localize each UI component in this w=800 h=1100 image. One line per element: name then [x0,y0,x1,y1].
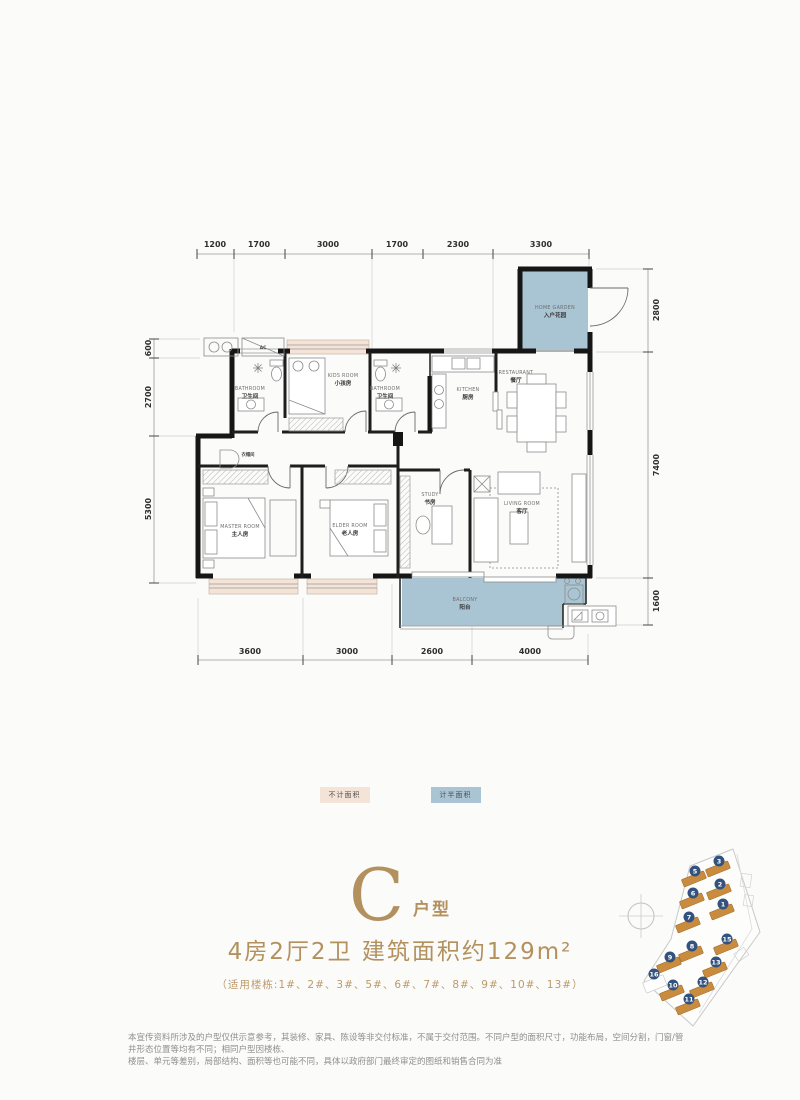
unit-spec-subtitle: 4房2厅2卫 建筑面积约129m² [0,932,800,966]
kids-bed [289,358,325,414]
title-block: C 户型 4房2厅2卫 建筑面积约129m² （适用楼栋:1#、2#、3#、5#… [0,862,800,992]
restaurant-label-en: RESTAURANT [499,370,534,376]
study-desk [416,506,452,544]
home-garden-label-zh: 入户花园 [543,311,567,319]
dim-right-1: 2800 [652,298,661,321]
dim-left-2: 2700 [144,385,153,408]
balcony-area [402,578,586,626]
disclaimer-line1: 本宣传资料所涉及的户型仅供示意参考，其装修、家具、陈设等非交付标准，不属于交付范… [128,1032,684,1056]
dim-bottom-4: 4000 [519,647,542,656]
home-garden-label-en: HOME GARDEN [535,305,575,311]
legend-half-label: 计半面积 [440,790,472,800]
study-bookshelf [400,476,410,568]
dim-bottom-1: 3600 [239,647,262,656]
legend-excluded-area: 不计面积 [320,787,370,803]
study-label-zh: 书房 [424,498,436,506]
master-room-label-zh: 主人房 [232,530,249,538]
disclaimer: 本宣传资料所涉及的户型仅供示意参考，其装修、家具、陈设等非交付标准，不属于交付范… [128,1032,684,1068]
master-room-label-en: MASTER ROOM [220,524,260,530]
dim-top-4: 1700 [386,240,409,249]
dim-left-1: 600 [144,339,153,356]
dim-top-5: 2300 [447,240,470,249]
bathroom2-label-zh: 卫生间 [377,392,394,400]
legend-excluded-label: 不计面积 [329,790,361,800]
study-label-en: STUDY [421,492,438,498]
balcony-label-zh: 阳台 [459,603,471,611]
bathroom2-fixtures [374,360,402,411]
kids-wardrobe [289,418,343,431]
cloak-label: 衣帽间 [242,451,256,458]
living-room-label-zh: 客厅 [515,507,528,515]
dim-top-2: 1700 [248,240,271,249]
elder-wardrobe [335,470,391,484]
dim-left-3: 5300 [144,497,153,520]
floorplan-flyer-page: 1200 1700 3000 1700 2300 3300 3600 3000 … [0,0,800,1100]
dim-top-1: 1200 [204,240,227,249]
legend-half-area: 计半面积 [431,787,481,803]
dim-right-2: 7400 [652,453,661,476]
applicable-buildings-note: （适用楼栋:1#、2#、3#、5#、6#、7#、8#、9#、10#、13#） [0,977,800,992]
balcony-label-en: BALCONY [453,597,478,603]
elder-room-label-zh: 老人房 [341,529,359,537]
legend: 不计面积 计半面积 [0,787,800,803]
ac-label: AC [260,345,266,351]
living-furniture [474,472,586,568]
living-room-label-en: LIVING ROOM [504,501,540,507]
kitchen-label-en: KITCHEN [457,387,480,393]
restaurant-label-zh: 餐厅 [509,376,522,384]
unit-type-suffix: 户型 [413,895,451,920]
bathroom1-label-zh: 卫生间 [242,392,259,400]
bathroom2-label-en: BATHROOM [370,386,400,392]
kitchen-label-zh: 厨房 [462,393,474,401]
kids-room-label-zh: 小孩房 [335,379,352,387]
kids-room-label-en: KIDS ROOM [328,373,359,379]
elder-room-label-en: ELDER ROOM [332,523,367,529]
disclaimer-line2: 楼层、单元等差别，局部结构、面积等也可能不同，具体以政府部门最终审定的图纸和销售… [128,1056,684,1068]
svg-text:11: 11 [684,995,694,1003]
dining-table [507,374,566,452]
master-wardrobe [203,470,268,484]
dim-right-3: 1600 [652,589,661,612]
dim-bottom-3: 2600 [421,647,444,656]
bathroom1-fixtures [238,360,283,411]
dim-bottom-2: 3000 [336,647,359,656]
bathroom1-label-en: BATHROOM [235,386,265,392]
dim-top-6: 3300 [530,240,553,249]
unit-type-title: C 户型 [0,862,800,924]
dim-top-3: 3000 [317,240,340,249]
unit-type-letter: C [349,866,404,924]
